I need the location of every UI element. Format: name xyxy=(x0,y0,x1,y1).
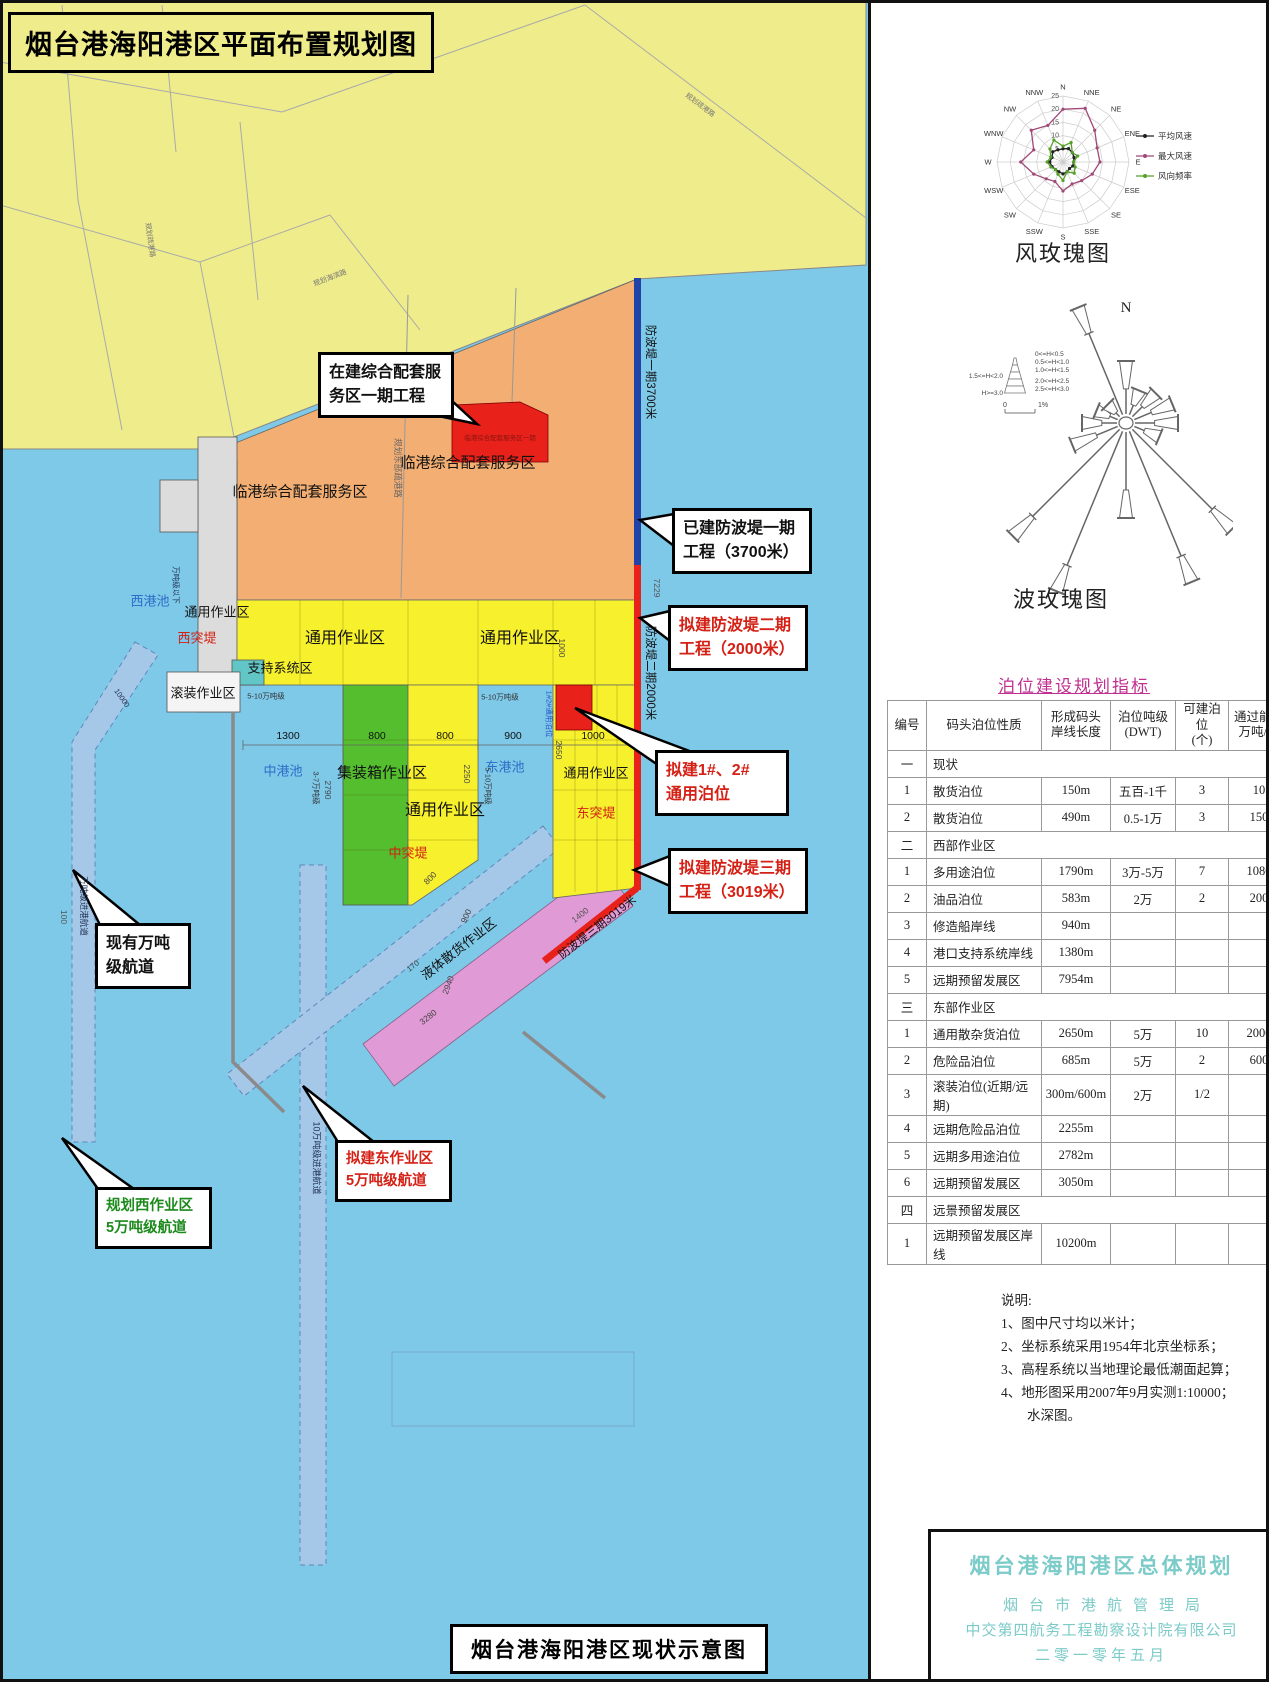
table-row: 1通用散杂货泊位2650m5万102000 xyxy=(888,1020,1269,1047)
map-label: 防波堤二期2000米 xyxy=(643,626,659,721)
callout-service-area-phase1: 在建综合配套服务区一期工程 xyxy=(318,352,454,418)
sheet-title: 烟台港海阳港区平面布置规划图 xyxy=(8,12,434,73)
cell: 1790m xyxy=(1042,858,1111,885)
callout-breakwater-2: 拟建防波堤二期工程（2000米） xyxy=(668,605,808,671)
svg-text:25: 25 xyxy=(1051,93,1059,100)
cell: 2万 xyxy=(1111,1074,1176,1115)
cell: 5 xyxy=(888,966,927,993)
cell: 东部作业区 xyxy=(927,993,1269,1020)
svg-text:NNW: NNW xyxy=(1025,88,1044,97)
svg-text:0<=H<0.5: 0<=H<0.5 xyxy=(1035,351,1064,358)
cell: 散货泊位 xyxy=(927,777,1042,804)
col-header: 通过能力万吨/年 xyxy=(1229,701,1269,751)
callout-line: 已建防波堤一期 xyxy=(683,517,801,541)
svg-text:风向频率: 风向频率 xyxy=(1158,171,1193,181)
map-label: 滚装作业区 xyxy=(170,683,235,702)
svg-text:SW: SW xyxy=(1004,211,1017,220)
map-label: 1000 xyxy=(557,639,567,658)
cell: 西部作业区 xyxy=(927,831,1269,858)
cell: 3 xyxy=(888,912,927,939)
cell: 2 xyxy=(888,885,927,912)
cell: 1 xyxy=(888,858,927,885)
svg-text:W: W xyxy=(984,158,992,167)
map-label: 西港池 xyxy=(130,591,169,610)
cell: 2 xyxy=(888,1047,927,1074)
callout-line: 工程（2000米） xyxy=(679,638,797,662)
svg-text:WNW: WNW xyxy=(984,129,1004,138)
drawing-sheet: 临港综合配套服务区临港综合配套服务区临港综合配套服务区一期通用作业区西港池西突堤… xyxy=(0,0,1269,1682)
cell xyxy=(1176,1142,1229,1169)
callout-line: 通用泊位 xyxy=(666,783,778,807)
cell xyxy=(1176,912,1229,939)
cell: 1/2 xyxy=(1176,1074,1229,1115)
bottom-caption: 烟台港海阳港区现状示意图 xyxy=(450,1624,768,1674)
callout-line: 拟建东作业区 xyxy=(346,1149,441,1171)
callout-line: 规划西作业区 xyxy=(106,1196,201,1218)
notes-heading: 说明: xyxy=(1001,1290,1263,1313)
west-pier-notch xyxy=(160,480,198,532)
cell: 10 xyxy=(1229,777,1269,804)
col-header: 形成码头岸线长度 xyxy=(1042,701,1111,751)
callout-berth-1-2: 拟建1#、2#通用泊位 xyxy=(655,750,789,816)
cell: 10200m xyxy=(1042,1223,1111,1264)
svg-text:10: 10 xyxy=(1051,133,1059,140)
cell: 3 xyxy=(888,1074,927,1115)
map-label: 通用作业区 xyxy=(405,796,485,820)
svg-text:NNE: NNE xyxy=(1084,88,1100,97)
cell: 583m xyxy=(1042,885,1111,912)
cell: 远期多用途泊位 xyxy=(927,1142,1042,1169)
callout-line: 在建综合配套服 xyxy=(329,361,443,385)
cell: 远期预留发展区 xyxy=(927,966,1042,993)
map-label: 规划东部疏港路 xyxy=(392,438,404,498)
cell xyxy=(1111,939,1176,966)
table-section-row: 四远景预留发展区 xyxy=(888,1196,1269,1223)
west-pier xyxy=(198,437,237,712)
map-label: 10万吨级进港航道 xyxy=(311,1121,324,1194)
cell: 7954m xyxy=(1042,966,1111,993)
note-item: 3、高程系统以当地理论最低潮面起算； xyxy=(1001,1359,1263,1382)
svg-text:1.0<=H<1.5: 1.0<=H<1.5 xyxy=(1035,367,1070,374)
cell: 4 xyxy=(888,1115,927,1142)
svg-text:1.5<=H<2.0: 1.5<=H<2.0 xyxy=(969,373,1004,380)
map-label: 2790 xyxy=(323,781,333,800)
svg-text:2.5<=H<3.0: 2.5<=H<3.0 xyxy=(1035,386,1070,393)
map-label: 5-10万吨级 xyxy=(481,692,519,703)
cell: 通用散杂货泊位 xyxy=(927,1020,1042,1047)
map-label: 西突堤 xyxy=(177,628,216,647)
callout-line: 5万吨级航道 xyxy=(106,1218,201,1240)
map-label: 3-7万吨级 xyxy=(311,771,322,804)
svg-text:SE: SE xyxy=(1111,211,1121,220)
map-label: 防波堤一期3700米 xyxy=(643,325,659,420)
cell: 6 xyxy=(888,1169,927,1196)
map-label: 5-10万吨级 xyxy=(247,691,285,702)
svg-text:2.0<=H<2.5: 2.0<=H<2.5 xyxy=(1035,378,1070,385)
table-row: 2危险品泊位685m5万2600 xyxy=(888,1047,1269,1074)
map-label: 支持系统区 xyxy=(247,658,312,677)
cell: 10 xyxy=(1176,1020,1229,1047)
title-block-line: 烟台市港航管理局 xyxy=(992,1594,1211,1615)
cell: 0.5-1万 xyxy=(1111,804,1176,831)
note-item: 1、图中尺寸均以米计； xyxy=(1001,1313,1263,1336)
callout-line: 工程（3019米） xyxy=(679,881,797,905)
cell xyxy=(1229,1142,1269,1169)
cell: 1380m xyxy=(1042,939,1111,966)
map-label: 中突堤 xyxy=(388,843,427,862)
note-item: 水深图。 xyxy=(1001,1405,1263,1428)
table-row: 1散货泊位150m五百-1千310 xyxy=(888,777,1269,804)
svg-text:平均风速: 平均风速 xyxy=(1158,131,1193,141)
table-row: 1多用途泊位1790m3万-5万71080 xyxy=(888,858,1269,885)
cell: 远期预留发展区岸线 xyxy=(927,1223,1042,1264)
svg-text:N: N xyxy=(1060,83,1065,92)
map-label: 900 xyxy=(504,730,522,742)
cell: 2000 xyxy=(1229,1020,1269,1047)
map-label: 100 xyxy=(59,910,69,924)
map-label: 临港综合配套服务区一期 xyxy=(464,432,536,442)
title-block-line: 二零一零年五月 xyxy=(1035,1644,1168,1665)
table-row: 6远期预留发展区3050m xyxy=(888,1169,1269,1196)
svg-text:0: 0 xyxy=(1003,402,1007,409)
cell: 现状 xyxy=(927,750,1269,777)
cell xyxy=(1229,966,1269,993)
cell: 2 xyxy=(1176,885,1229,912)
callout-line: 拟建防波堤三期 xyxy=(679,857,797,881)
cell xyxy=(1176,939,1229,966)
berth-table-header: 编号码头泊位性质形成码头岸线长度泊位吨级(DWT)可建泊位(个)通过能力万吨/年 xyxy=(888,701,1269,751)
cell: 2255m xyxy=(1042,1115,1111,1142)
wave-rose-chart: N1.5<=H<2.0H>=3.00<=H<0.50.5<=H<1.01.0<=… xyxy=(943,278,1233,618)
cell: 1 xyxy=(888,1223,927,1264)
svg-text:WSW: WSW xyxy=(984,186,1004,195)
svg-text:SSE: SSE xyxy=(1084,227,1099,236)
cell: 五百-1千 xyxy=(1111,777,1176,804)
map-label: 1000 xyxy=(581,730,604,742)
map-label: 万吨级以下 xyxy=(171,566,182,604)
table-row: 4港口支持系统岸线1380m xyxy=(888,939,1269,966)
cell xyxy=(1229,1223,1269,1264)
svg-text:NE: NE xyxy=(1111,104,1121,113)
note-item: 2、坐标系统采用1954年北京坐标系； xyxy=(1001,1336,1263,1359)
title-block-line: 中交第四航务工程勘察设计院有限公司 xyxy=(965,1619,1237,1640)
cell: 散货泊位 xyxy=(927,804,1042,831)
notes: 说明: 1、图中尺寸均以米计；2、坐标系统采用1954年北京坐标系；3、高程系统… xyxy=(1001,1290,1263,1428)
callout-east-channel: 拟建东作业区5万吨级航道 xyxy=(335,1140,452,1202)
cell: 3050m xyxy=(1042,1169,1111,1196)
svg-text:0.5<=H<1.0: 0.5<=H<1.0 xyxy=(1035,359,1070,366)
map-label: 1300 xyxy=(276,730,299,742)
cell: 3 xyxy=(1176,804,1229,831)
cell xyxy=(1111,1115,1176,1142)
callout-line: 拟建1#、2# xyxy=(666,759,778,783)
cell: 修造船岸线 xyxy=(927,912,1042,939)
cell: 油品泊位 xyxy=(927,885,1042,912)
cell xyxy=(1229,1074,1269,1115)
svg-text:1%: 1% xyxy=(1038,402,1048,409)
map-label: 2250 xyxy=(462,765,472,784)
map-label: 7229 xyxy=(652,579,662,598)
cell xyxy=(1111,1169,1176,1196)
cell xyxy=(1176,1169,1229,1196)
table-row: 1远期预留发展区岸线10200m xyxy=(888,1223,1269,1264)
cell: 685m xyxy=(1042,1047,1111,1074)
cell: 200 xyxy=(1229,885,1269,912)
cell: 多用途泊位 xyxy=(927,858,1042,885)
cell: 港口支持系统岸线 xyxy=(927,939,1042,966)
table-row: 4远期危险品泊位2255m xyxy=(888,1115,1269,1142)
berth-table-title: 泊位建设规划指标 xyxy=(998,672,1150,697)
col-header: 可建泊位(个) xyxy=(1176,701,1229,751)
callout-line: 级航道 xyxy=(106,956,180,980)
cell: 远景预留发展区 xyxy=(927,1196,1269,1223)
callout-line: 拟建防波堤二期 xyxy=(679,614,797,638)
map-label: 中港池 xyxy=(263,761,302,780)
cell: 5万 xyxy=(1111,1047,1176,1074)
cell: 远期预留发展区 xyxy=(927,1169,1042,1196)
cell: 危险品泊位 xyxy=(927,1047,1042,1074)
cell: 2782m xyxy=(1042,1142,1111,1169)
table-row: 5远期多用途泊位2782m xyxy=(888,1142,1269,1169)
wind-rose-title: 风玫瑰图 xyxy=(1015,236,1111,268)
map-label: 1#2#通用泊位 xyxy=(544,691,555,738)
callout-breakwater-3: 拟建防波堤三期工程（3019米） xyxy=(668,848,808,914)
cell: 940m xyxy=(1042,912,1111,939)
cell xyxy=(1176,1223,1229,1264)
callout-line: 5万吨级航道 xyxy=(346,1171,441,1193)
cell xyxy=(1111,1142,1176,1169)
col-header: 泊位吨级(DWT) xyxy=(1111,701,1176,751)
cell xyxy=(1176,1115,1229,1142)
map-label: 通用作业区 xyxy=(480,624,560,648)
col-header: 码头泊位性质 xyxy=(927,701,1042,751)
berth-table: 编号码头泊位性质形成码头岸线长度泊位吨级(DWT)可建泊位(个)通过能力万吨/年… xyxy=(887,700,1269,1265)
map-label: 2650 xyxy=(554,741,564,760)
svg-text:E: E xyxy=(1135,158,1140,167)
cell: 490m xyxy=(1042,804,1111,831)
svg-text:SSW: SSW xyxy=(1026,227,1044,236)
cell xyxy=(1229,912,1269,939)
cell: 1 xyxy=(888,777,927,804)
map-label: 临港综合配套服务区 xyxy=(400,452,535,473)
svg-text:NW: NW xyxy=(1004,104,1017,113)
callout-line: 现有万吨 xyxy=(106,932,180,956)
cell: 一 xyxy=(888,750,927,777)
callout-west-channel: 规划西作业区5万吨级航道 xyxy=(95,1187,212,1249)
cell xyxy=(1229,1115,1269,1142)
cell: 3万-5万 xyxy=(1111,858,1176,885)
callout-line: 工程（3700米） xyxy=(683,541,801,565)
map-label: 集装箱作业区 xyxy=(337,762,427,783)
cell: 1080 xyxy=(1229,858,1269,885)
cell: 5 xyxy=(888,1142,927,1169)
map-label: 东突堤 xyxy=(576,803,615,822)
cell: 二 xyxy=(888,831,927,858)
cell: 2 xyxy=(1176,1047,1229,1074)
cell: 远期危险品泊位 xyxy=(927,1115,1042,1142)
svg-text:ESE: ESE xyxy=(1125,186,1140,195)
cell: 滚装泊位(近期/远期) xyxy=(927,1074,1042,1115)
svg-text:最大风速: 最大风速 xyxy=(1158,151,1193,161)
map-label: 通用作业区 xyxy=(563,763,628,782)
table-section-row: 二西部作业区 xyxy=(888,831,1269,858)
table-section-row: 三东部作业区 xyxy=(888,993,1269,1020)
title-block: 烟台港海阳港区总体规划烟台市港航管理局中交第四航务工程勘察设计院有限公司二零一零… xyxy=(928,1529,1269,1682)
right-panel: NNNENEENEEESESESSESSSWSWWSWWWNWNWNNW5101… xyxy=(868,0,1269,1682)
map-label: 5-10万吨级 xyxy=(483,767,494,805)
callout-line: 务区一期工程 xyxy=(329,385,443,409)
cell: 150m xyxy=(1042,777,1111,804)
cell: 2 xyxy=(888,804,927,831)
map-label: 800 xyxy=(368,730,386,742)
cell xyxy=(1176,966,1229,993)
100kt-channel xyxy=(300,865,326,1565)
svg-text:H>=3.0: H>=3.0 xyxy=(982,390,1004,397)
cell xyxy=(1229,939,1269,966)
table-row: 2油品泊位583m2万2200 xyxy=(888,885,1269,912)
cell: 4 xyxy=(888,939,927,966)
map-label: 万吨级进港航道 xyxy=(78,876,90,936)
cell: 1 xyxy=(888,1020,927,1047)
cell: 四 xyxy=(888,1196,927,1223)
cell: 150 xyxy=(1229,804,1269,831)
table-row: 2散货泊位490m0.5-1万3150 xyxy=(888,804,1269,831)
cell: 300m/600m xyxy=(1042,1074,1111,1115)
map-label: 通用作业区 xyxy=(184,602,249,621)
cell: 三 xyxy=(888,993,927,1020)
berth-1-2-block xyxy=(556,685,592,730)
table-row: 5远期预留发展区7954m xyxy=(888,966,1269,993)
map-label: 临港综合配套服务区 xyxy=(232,481,367,502)
cell: 3 xyxy=(1176,777,1229,804)
note-item: 4、地形图采用2007年9月实测1:10000； xyxy=(1001,1382,1263,1405)
cell xyxy=(1229,1169,1269,1196)
table-row: 3滚装泊位(近期/远期)300m/600m2万1/2 xyxy=(888,1074,1269,1115)
cell xyxy=(1111,966,1176,993)
title-block-line: 烟台港海阳港区总体规划 xyxy=(970,1550,1234,1580)
cell: 5万 xyxy=(1111,1020,1176,1047)
cell: 2万 xyxy=(1111,885,1176,912)
callout-existing-channel: 现有万吨级航道 xyxy=(95,923,191,989)
table-section-row: 一现状 xyxy=(888,750,1269,777)
cell: 7 xyxy=(1176,858,1229,885)
port-plan-map: 临港综合配套服务区临港综合配套服务区临港综合配套服务区一期通用作业区西港池西突堤… xyxy=(0,0,868,1682)
cell xyxy=(1111,1223,1176,1264)
table-row: 3修造船岸线940m xyxy=(888,912,1269,939)
map-canvas xyxy=(0,0,868,1682)
cell: 2650m xyxy=(1042,1020,1111,1047)
wave-rose-title: 波玫瑰图 xyxy=(1013,582,1109,614)
map-label: 800 xyxy=(436,730,454,742)
col-header: 编号 xyxy=(888,701,927,751)
svg-text:20: 20 xyxy=(1051,106,1059,113)
map-label: 通用作业区 xyxy=(305,624,385,648)
callout-breakwater-1: 已建防波堤一期工程（3700米） xyxy=(672,508,812,574)
svg-text:N: N xyxy=(1121,300,1132,316)
cell xyxy=(1111,912,1176,939)
cell: 600 xyxy=(1229,1047,1269,1074)
